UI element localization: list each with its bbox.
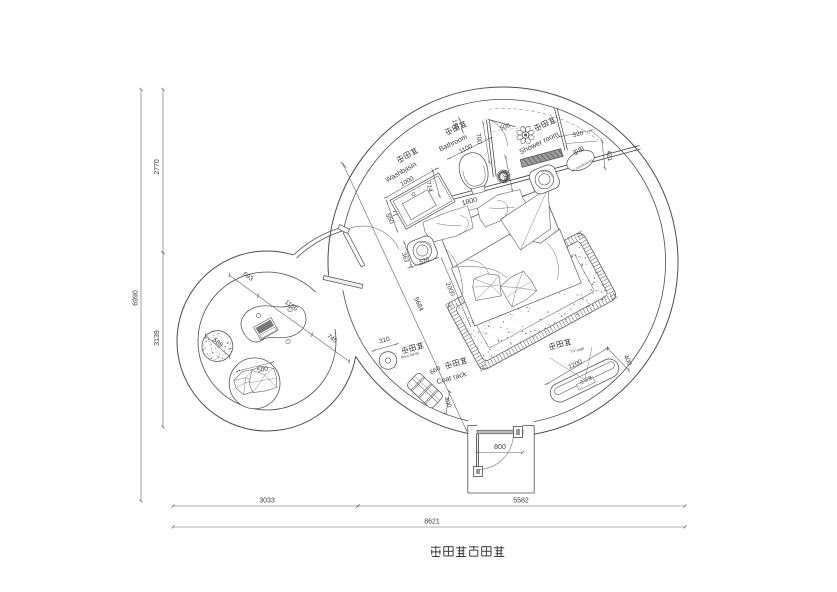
svg-text:2770: 2770 — [154, 159, 161, 175]
svg-text:3139: 3139 — [154, 330, 161, 346]
svg-text:5582: 5582 — [513, 498, 529, 505]
svg-text:6990: 6990 — [133, 290, 140, 306]
svg-text:3033: 3033 — [259, 498, 275, 505]
svg-text:800: 800 — [494, 444, 506, 451]
svg-text:8621: 8621 — [424, 519, 440, 526]
